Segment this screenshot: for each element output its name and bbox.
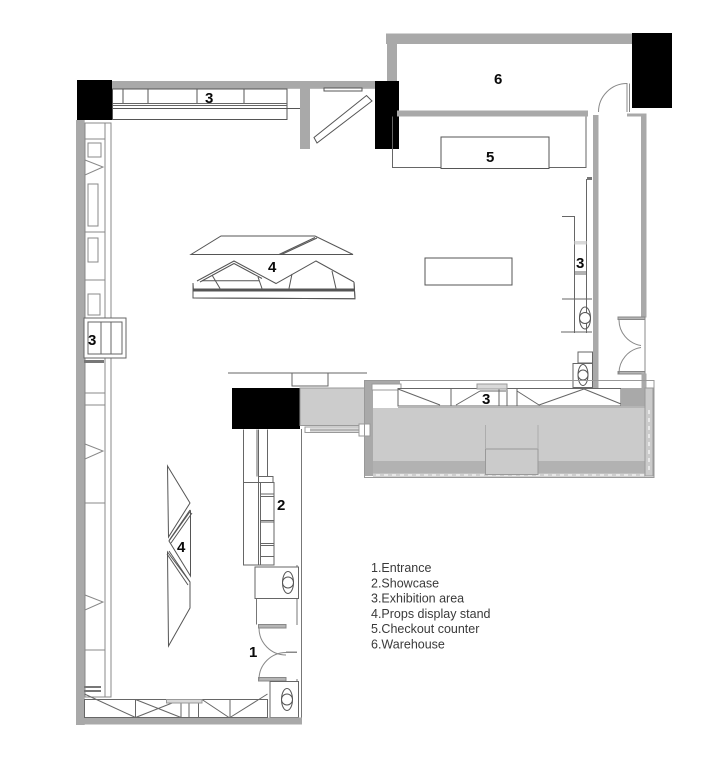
svg-text:5: 5 bbox=[486, 149, 494, 166]
svg-text:2.Showcase: 2.Showcase bbox=[371, 576, 439, 590]
svg-text:3: 3 bbox=[205, 90, 213, 107]
svg-text:3.Exhibition area: 3.Exhibition area bbox=[371, 592, 464, 606]
svg-text:4: 4 bbox=[268, 259, 277, 276]
svg-text:6: 6 bbox=[494, 71, 502, 88]
svg-text:4: 4 bbox=[177, 539, 186, 556]
svg-text:3: 3 bbox=[88, 332, 96, 349]
svg-text:1.Entrance: 1.Entrance bbox=[371, 561, 432, 575]
svg-text:3: 3 bbox=[576, 255, 584, 272]
svg-text:2: 2 bbox=[277, 497, 285, 514]
svg-text:1: 1 bbox=[249, 644, 257, 661]
svg-text:3: 3 bbox=[482, 391, 490, 408]
svg-text:6.Warehouse: 6.Warehouse bbox=[371, 638, 445, 652]
svg-text:5.Checkout counter: 5.Checkout counter bbox=[371, 622, 479, 636]
svg-text:4.Props display stand: 4.Props display stand bbox=[371, 607, 491, 621]
